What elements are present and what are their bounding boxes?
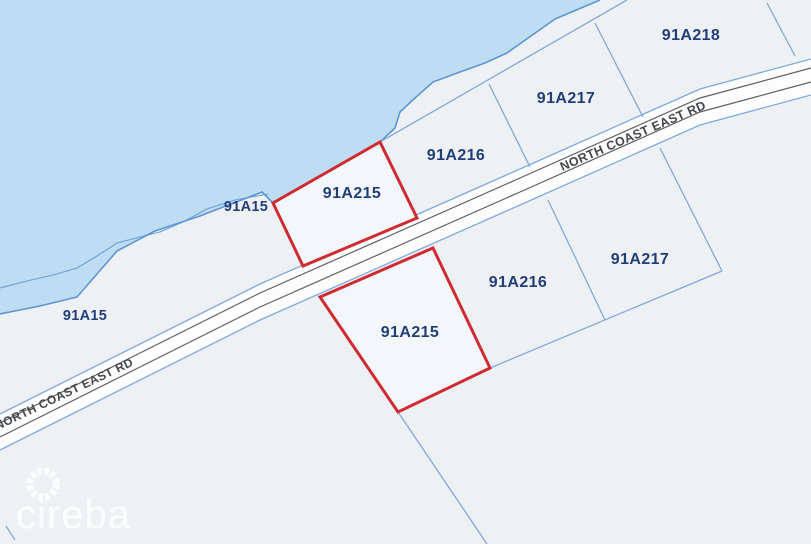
parcel-label-91a15-west: 91A15 xyxy=(63,308,107,324)
parcel-label-91a218: 91A218 xyxy=(662,27,720,44)
parcel-label-91a15-east: 91A15 xyxy=(224,199,268,215)
cadastral-map-canvas[interactable]: 91A215 91A216 91A217 91A218 91A215 91A21… xyxy=(0,0,811,544)
map-viewport[interactable]: 91A215 91A216 91A217 91A218 91A215 91A21… xyxy=(0,0,811,544)
parcel-label-91a216-north: 91A216 xyxy=(427,147,485,164)
parcel-label-91a215-south: 91A215 xyxy=(381,324,439,341)
parcel-label-91a215-north: 91A215 xyxy=(323,185,381,202)
parcel-label-91a217-north: 91A217 xyxy=(537,90,595,107)
cireba-watermark-text: cireba xyxy=(16,493,131,537)
parcel-label-91a217-south: 91A217 xyxy=(611,251,669,268)
parcel-label-91a216-south: 91A216 xyxy=(489,274,547,291)
